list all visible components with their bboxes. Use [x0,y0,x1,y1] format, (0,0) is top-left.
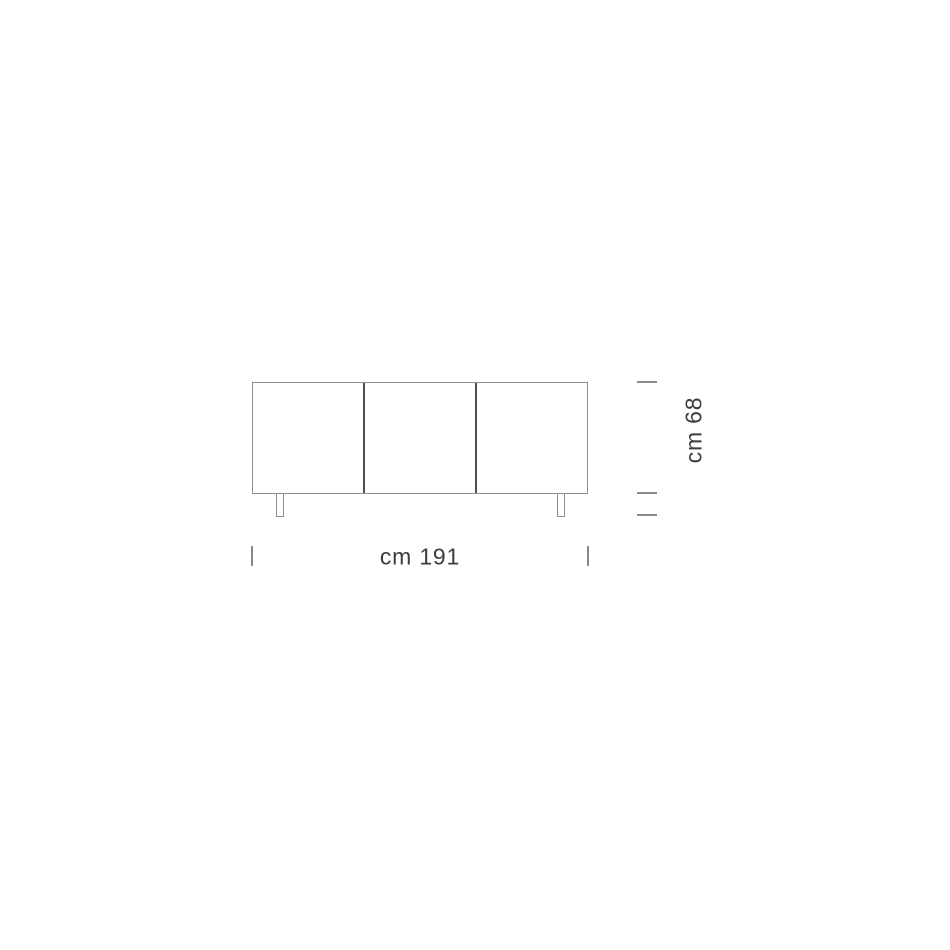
sideboard-body [252,382,588,494]
width-dimension-label: cm 191 [380,546,460,569]
width-tick-right [587,546,589,566]
height-tick-body-bottom [637,492,657,494]
door-divider-left [363,383,365,493]
height-dimension-label: cm 68 [683,397,706,464]
height-tick-floor [637,514,657,516]
dimension-diagram: cm 68 cm 191 [0,0,950,950]
width-tick-left [251,546,253,566]
height-tick-top [637,381,657,383]
sideboard-leg-left [276,493,284,517]
door-divider-right [475,383,477,493]
sideboard-leg-right [557,493,565,517]
